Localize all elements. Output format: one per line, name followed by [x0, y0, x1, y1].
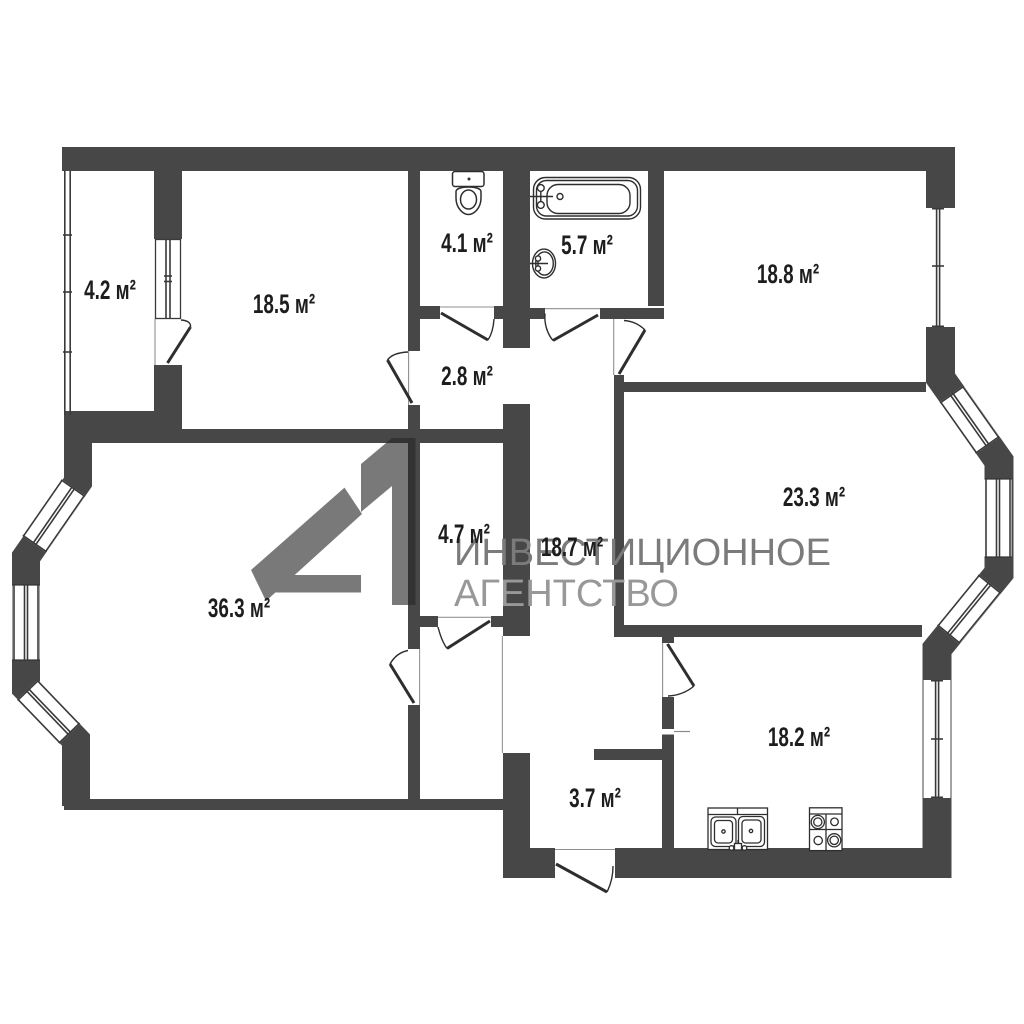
svg-text:3.7 м²: 3.7 м²	[569, 783, 621, 813]
svg-text:18.2 м²: 18.2 м²	[768, 722, 830, 752]
svg-text:2.8 м²: 2.8 м²	[441, 361, 493, 391]
svg-text:5.7 м²: 5.7 м²	[561, 230, 613, 260]
svg-text:АГЕНТСТВО: АГЕНТСТВО	[454, 573, 679, 615]
svg-text:ИНВЕСТИЦИОННОЕ: ИНВЕСТИЦИОННОЕ	[454, 532, 831, 574]
svg-text:18.7 м²: 18.7 м²	[541, 532, 603, 562]
svg-text:23.3 м²: 23.3 м²	[783, 482, 845, 512]
svg-text:18.5 м²: 18.5 м²	[253, 289, 315, 319]
svg-text:4.1 м²: 4.1 м²	[441, 228, 493, 258]
svg-text:4.2 м²: 4.2 м²	[84, 275, 136, 305]
svg-text:4.7 м²: 4.7 м²	[438, 519, 490, 549]
svg-text:18.8 м²: 18.8 м²	[757, 259, 819, 289]
svg-text:36.3 м²: 36.3 м²	[208, 593, 270, 623]
